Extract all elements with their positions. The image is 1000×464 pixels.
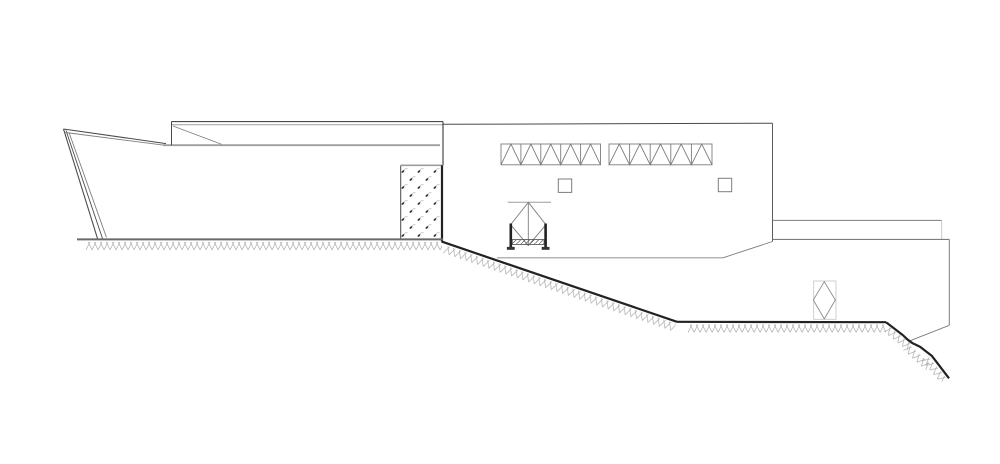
left-wall-outer-line <box>64 129 98 239</box>
clerestory-band-diagonal <box>173 126 222 144</box>
drawing-layers <box>64 122 950 383</box>
planter-left-foot <box>507 247 515 250</box>
page <box>0 0 1000 464</box>
tree-symbol-right-box <box>814 281 836 319</box>
terrain-flat-hatch <box>688 324 886 334</box>
tree-symbol-main <box>511 202 546 245</box>
planter-soil-bar <box>512 240 544 245</box>
left-wall-inner-line <box>69 133 107 238</box>
ground-hatch-left <box>86 242 442 252</box>
roof-wedge-top-line <box>64 129 167 144</box>
left-wall-mid-line <box>66 131 103 239</box>
terrain-slope-line <box>442 242 677 322</box>
main-roof-edge <box>443 123 773 124</box>
right-structure-chamfer <box>909 325 950 341</box>
window-square-1 <box>558 179 571 192</box>
site-section-drawing <box>0 0 1000 464</box>
roof-truss-1 <box>501 144 601 165</box>
roof-truss-2 <box>609 144 712 165</box>
main-bottom-chamfer <box>723 242 773 258</box>
window-square-2 <box>718 178 731 191</box>
planter-right-foot <box>542 247 550 250</box>
roof-wedge-bottom-line <box>66 133 167 146</box>
gabion-wall-fill <box>401 165 442 240</box>
tree-symbol-right <box>813 282 835 319</box>
